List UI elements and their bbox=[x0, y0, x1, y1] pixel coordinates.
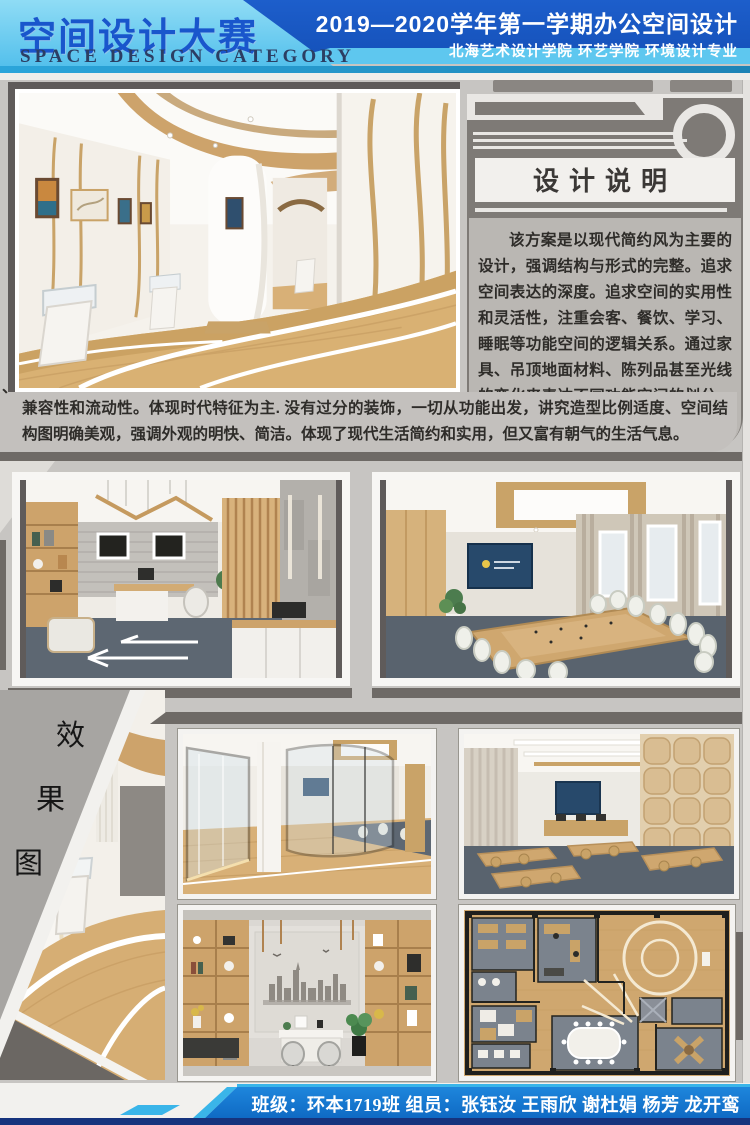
floor-plan-art bbox=[464, 910, 730, 1076]
training-room-art bbox=[464, 734, 734, 894]
office-art bbox=[26, 480, 336, 678]
left-edge-rail bbox=[0, 540, 6, 670]
reception-rendering bbox=[177, 904, 437, 1082]
footer-band: 班级：环本1719班 组员：张钰汝 王雨欣 谢杜娟 杨芳 龙开鸾 bbox=[0, 1083, 750, 1125]
decor-bar-long bbox=[493, 80, 653, 92]
design-notes-title: 设计说明 bbox=[475, 158, 735, 202]
school-line: 北海艺术设计学院 环艺学院 环境设计专业 bbox=[449, 40, 738, 61]
circuit-line-decor bbox=[473, 132, 681, 135]
rail-under-conference bbox=[372, 688, 740, 698]
conference-frame-rails bbox=[380, 480, 732, 678]
gallery-corridor-rendering bbox=[8, 82, 460, 392]
glass-office-rendering bbox=[177, 728, 437, 900]
office-frame-rails bbox=[20, 480, 342, 678]
divider-rail-top bbox=[0, 452, 742, 461]
rail-above-grid bbox=[150, 712, 742, 724]
competition-subtitle: SPACE DESIGN CATEGORY bbox=[20, 46, 355, 68]
header-banner: 空间设计大赛 SPACE DESIGN CATEGORY 2019—2020学年… bbox=[0, 0, 750, 80]
conference-art bbox=[386, 480, 726, 678]
office-rendering bbox=[12, 472, 350, 686]
circuit-line-decor bbox=[473, 139, 687, 142]
circuit-line-decor bbox=[473, 146, 679, 149]
poster-page: 空间设计大赛 SPACE DESIGN CATEGORY 2019—2020学年… bbox=[0, 0, 750, 1125]
page-right-margin bbox=[742, 78, 750, 1083]
footer-navy-strip bbox=[0, 1118, 750, 1125]
term-title: 2019—2020学年第一学期办公空间设计 bbox=[316, 5, 738, 39]
reception-art bbox=[183, 910, 431, 1076]
footer-cyan-stripe-small bbox=[120, 1105, 180, 1115]
header-bottom-line bbox=[0, 73, 750, 80]
right-edge-rail-bottom bbox=[736, 932, 743, 1040]
effect-label-char-2: 果 bbox=[36, 776, 65, 818]
stray-punctuation: 、 bbox=[2, 376, 17, 397]
effect-label-char-3: 图 bbox=[14, 840, 43, 882]
training-room-rendering bbox=[458, 728, 740, 900]
glass-office-art bbox=[183, 734, 431, 894]
circuit-circle-decor bbox=[673, 104, 735, 166]
floor-plan-rendering bbox=[458, 904, 736, 1082]
decor-bar-short bbox=[670, 80, 732, 92]
design-notes-continuation: 兼容性和流动性。体现时代特征为主. 没有过分的装饰，一切从功能出发，讲究造型比例… bbox=[22, 396, 728, 448]
footer-credits: 班级：环本1719班 组员：张钰汝 王雨欣 谢杜娟 杨芳 龙开鸾 bbox=[252, 1091, 741, 1117]
circuit-bar-decor bbox=[475, 102, 645, 115]
conference-room-rendering bbox=[372, 472, 740, 686]
design-notes-divider bbox=[475, 208, 727, 212]
effect-label-char-1: 效 bbox=[56, 712, 85, 754]
gallery-corridor-art bbox=[19, 93, 456, 388]
